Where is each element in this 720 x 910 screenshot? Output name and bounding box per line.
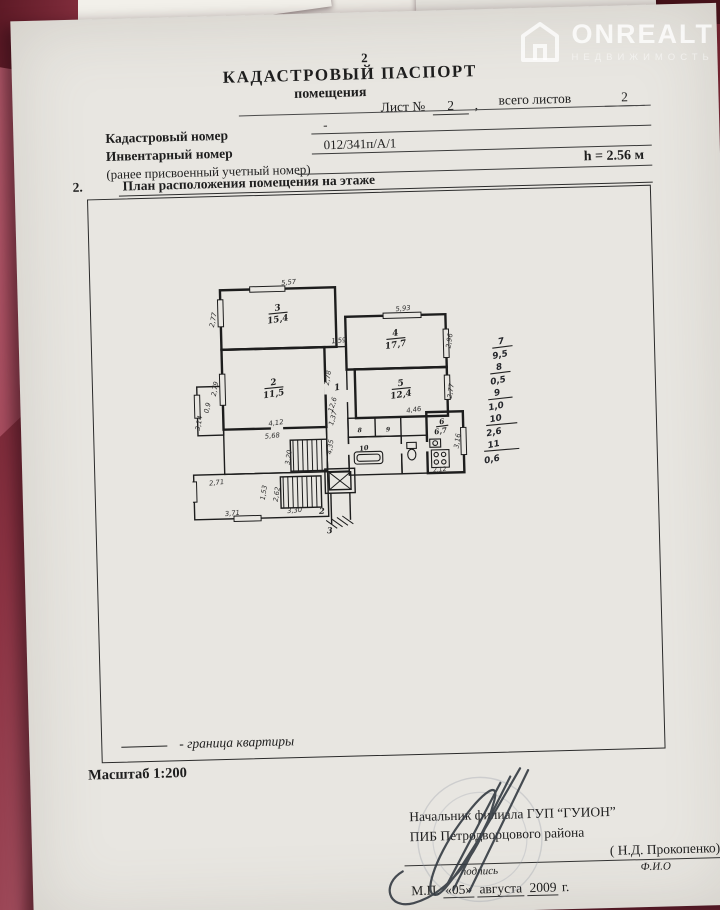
onrealt-watermark: ONREALT НЕДВИЖИМОСТЬ <box>518 20 715 64</box>
scale-label: Масштаб 1:200 <box>88 765 187 785</box>
plan-label: 2,77 <box>446 382 456 399</box>
plan-label: 0,6 <box>484 454 501 467</box>
room-2-walls <box>221 347 326 430</box>
plan-label: 0,5 <box>490 375 507 388</box>
bathtub-icon <box>354 451 383 464</box>
plan-label: 4,46 <box>406 405 422 415</box>
window-mark <box>250 286 285 292</box>
plan-label: 2 <box>318 506 325 516</box>
window-mark <box>219 374 225 405</box>
plan-label: 9 <box>386 426 391 433</box>
document-page: 2 КАДАСТРОВЫЙ ПАСПОРТ помещения Лист № 2… <box>10 3 720 910</box>
plan-label: 4,12 <box>268 418 284 428</box>
staircase-hatching <box>279 439 328 508</box>
plan-label: 3 <box>274 303 282 314</box>
plan-label: 8 <box>495 362 503 373</box>
plan-label: 9,5 <box>492 349 509 362</box>
signature-scrawl <box>387 768 532 905</box>
total-sheets-label: всего листов <box>498 91 571 109</box>
plan-label: 2,6 <box>486 426 503 439</box>
plan-label: 2,79 <box>210 381 221 397</box>
ceiling-height-value: h = 2.56 м <box>584 148 645 166</box>
plan-label: 1 <box>333 383 341 394</box>
plan-label: 5,57 <box>281 278 297 287</box>
plan-label: 2 <box>269 378 278 389</box>
door-opening <box>345 390 349 402</box>
house-logo-icon <box>518 20 562 64</box>
plan-label: 11 <box>487 439 501 451</box>
sink-icon <box>430 439 441 447</box>
toilet-icon <box>407 442 417 460</box>
cadastral-number-label: Кадастровый номер <box>105 128 228 147</box>
plan-label: 2,71 <box>209 478 225 488</box>
section-number: 2. <box>72 180 83 196</box>
legend-text: - граница квартиры <box>179 733 294 752</box>
inventory-number-label: Инвентарный номер <box>106 146 233 165</box>
plan-label: 7 <box>497 336 506 347</box>
window-mark <box>191 482 197 502</box>
window-mark <box>383 312 421 318</box>
plan-label: 1,53 <box>259 485 269 501</box>
plan-label: 12,4 <box>390 389 413 402</box>
plan-label: 2,78 <box>323 370 333 386</box>
floor-plan-svg: 315,4211,5417,7512,4166,78910235,572,772… <box>187 270 546 550</box>
door-opening <box>425 442 429 452</box>
plan-label: 10 <box>489 413 503 425</box>
entrance-stub <box>325 493 353 529</box>
plan-label: 15,4 <box>267 313 290 326</box>
plan-label: 3 <box>327 525 333 535</box>
plan-label: 0,9 <box>202 402 212 414</box>
plan-label: 5,68 <box>264 431 280 440</box>
stove-icon <box>431 450 449 468</box>
plan-label: 8 <box>357 427 362 434</box>
sheet-label: Лист № <box>380 99 425 116</box>
handwritten-signature <box>350 757 634 910</box>
plan-label: 11,5 <box>262 388 285 401</box>
plan-label: 3,20 <box>284 449 294 465</box>
plan-label: 6 <box>438 417 445 427</box>
plan-label: 1,59 <box>331 336 347 345</box>
toilet-walls <box>401 435 428 474</box>
door-opening <box>347 444 351 455</box>
elevator-shaft <box>325 468 355 493</box>
window-mark <box>194 395 200 418</box>
plan-label: 9 <box>493 388 501 399</box>
plan-label: 5,93 <box>395 304 411 313</box>
inventory-number-value: 012/341п/А/1 <box>323 135 396 153</box>
bathroom-walls <box>348 436 402 475</box>
plan-label: 1,0 <box>488 401 505 414</box>
photo-frame: 2 КАДАСТРОВЫЙ ПАСПОРТ помещения Лист № 2… <box>0 0 720 910</box>
plan-label: 2,77 <box>208 311 219 328</box>
cadastral-number-value: - <box>323 117 328 133</box>
plan-label: 2,96 <box>444 333 454 349</box>
plan-label: 4,35 <box>325 439 335 455</box>
plan-label: 3,71 <box>225 509 241 518</box>
plan-label: 3,30 <box>287 506 303 515</box>
plan-label: 10 <box>359 444 370 453</box>
plan-label: 4 <box>392 328 400 339</box>
plan-label: 6,7 <box>433 425 448 436</box>
watermark-subtitle: НЕДВИЖИМОСТЬ <box>572 52 715 63</box>
fullname-caption: Ф.И.О <box>641 860 672 873</box>
plan-label: 17,7 <box>384 338 408 352</box>
sheet-comma: , <box>474 97 478 113</box>
door-opening <box>399 444 403 454</box>
watermark-brand: ONREALT <box>572 21 715 48</box>
plan-label: 5 <box>397 378 405 389</box>
